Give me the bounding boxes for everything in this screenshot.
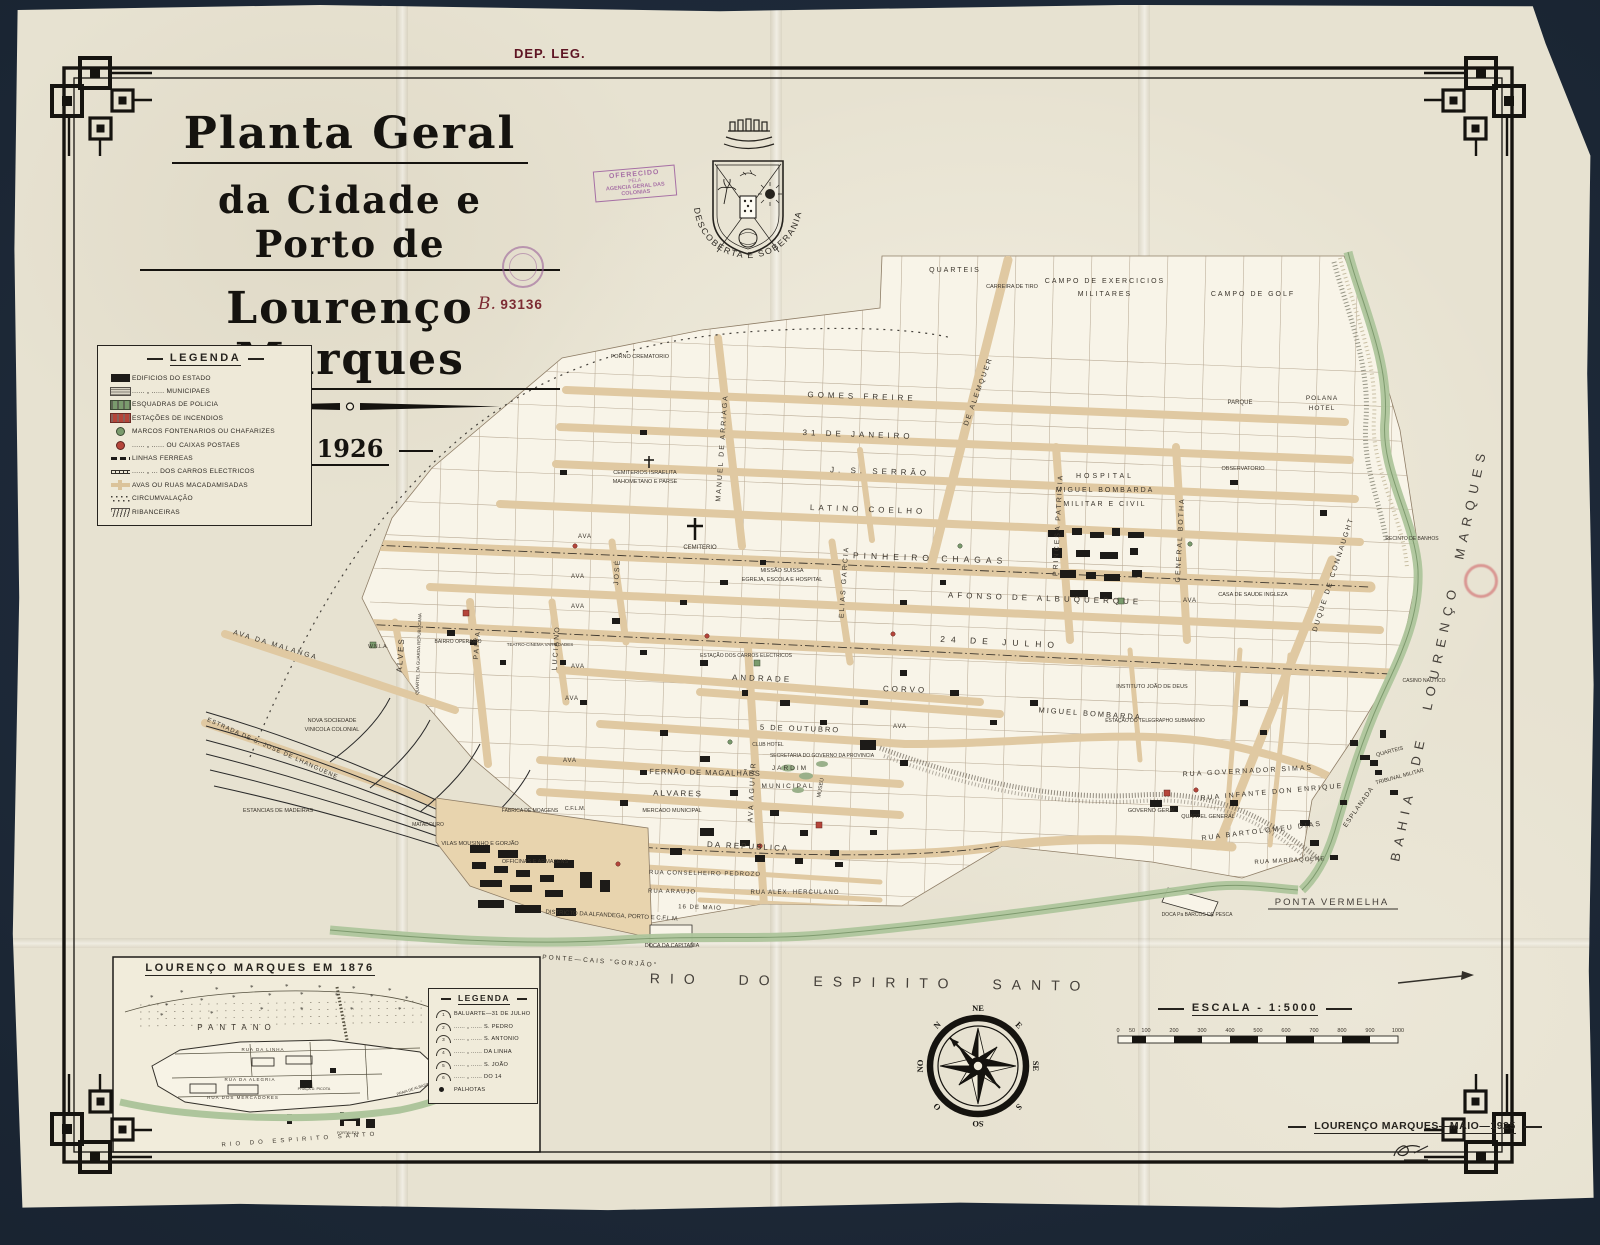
baluarte-icon xyxy=(439,1087,444,1092)
tree-symbol: * xyxy=(210,1010,214,1018)
legend-symbol xyxy=(116,441,125,450)
legend-item: CIRCUMVALAÇÃO xyxy=(108,493,303,505)
inset-legend-item: 6 ...... „ ...... DO 14 xyxy=(436,1071,532,1084)
map-label: MILITAR E CIVIL xyxy=(1063,501,1146,508)
legend-symbol xyxy=(111,508,130,517)
map-label: CARREIRA DE TIRO xyxy=(986,284,1039,290)
map-label: AVA xyxy=(1183,598,1197,604)
map-label: AVA xyxy=(571,604,585,610)
legend-item: ...... „ ...... MUNICIPAES xyxy=(108,385,303,397)
legend-box: LEGENDA EDIFICIOS DO ESTADO ...... „ ...… xyxy=(97,345,312,526)
map-label: ESTAÇÃO DO TELEGRAPHO SUBMARINO xyxy=(1105,717,1205,724)
legend-symbol xyxy=(111,496,130,502)
map-label: EGREJA, ESCOLA E HOSPITAL xyxy=(742,577,823,583)
map-label: CLUB HOTEL xyxy=(752,742,784,748)
tree-symbol: * xyxy=(300,991,304,999)
scale-tick-label: 1000 xyxy=(1392,1028,1404,1034)
scale-title: ESCALA - 1:5000 xyxy=(1192,1002,1318,1016)
map-label: QUARTEL GENERAL xyxy=(1181,814,1235,820)
legend-symbol xyxy=(111,470,130,475)
tree-symbol: * xyxy=(232,994,236,1002)
legend-item: ESQUADRAS DE POLICIA xyxy=(108,399,303,411)
tree-symbol: * xyxy=(335,992,339,1000)
map-label: RUA ARAUJO xyxy=(648,889,696,896)
map-label: AVA DA MALANGA xyxy=(232,629,318,661)
scale-tick-label: 200 xyxy=(1169,1028,1178,1034)
map-label: HOTEL xyxy=(1309,405,1336,412)
map-label: TEATRO-CINEMA VARIEDADES xyxy=(507,642,574,647)
map-label: AVA xyxy=(563,758,577,764)
map-label: PONTE—CAIS "GORJÃO" xyxy=(542,952,658,969)
legend-title-row: LEGENDA xyxy=(108,352,303,366)
inset-legend-box: LEGENDA 1 BALUARTE—31 DE JULHO 2 ...... … xyxy=(428,988,538,1104)
map-label: CAMPO DE GOLF xyxy=(1211,291,1295,298)
map-label: MILITARES xyxy=(1078,291,1132,298)
map-label: DOCA Pa BARCOS DE PESCA xyxy=(1162,912,1234,918)
compass-direction: N xyxy=(931,1019,943,1031)
baluarte-icon: 3 xyxy=(436,1035,451,1043)
credit-row: LOURENÇO MARQUES—MAIO—1925 xyxy=(1270,1120,1560,1134)
map-label: PRAÇA D. PICOTA xyxy=(298,1087,331,1091)
river-flow-arrow xyxy=(1398,971,1474,983)
map-label: QUARTEIS xyxy=(929,267,981,274)
compass-rose: NEESESSOONON xyxy=(915,1003,1041,1129)
legend-item-label: MARCOS FONTENARIOS OU CHAFARIZES xyxy=(132,428,275,435)
map-label: OFFICINAS E ARMAZENS xyxy=(502,859,569,865)
legend-item-label: ...... „ ...... OU CAIXAS POSTAES xyxy=(132,442,240,449)
map-label: MERCADO MUNICIPAL xyxy=(642,808,701,814)
registry-number: B. 93136 xyxy=(478,294,543,314)
scale-bar: 0501002003004005006007008009001000 xyxy=(1116,1028,1404,1043)
compass-direction: E xyxy=(1013,1019,1024,1030)
legend-item: ...... „ ...... OU CAIXAS POSTAES xyxy=(108,439,303,451)
legend-title: LEGENDA xyxy=(170,352,241,366)
compass-direction: NE xyxy=(972,1003,984,1013)
map-label: JARDIM xyxy=(772,765,808,772)
legend-item-label: CIRCUMVALAÇÃO xyxy=(132,495,193,502)
inset-legend-item-label: BALUARTE—31 DE JULHO xyxy=(454,1011,530,1017)
map-label: BAIRRO OPERARIO xyxy=(435,639,482,645)
legend-item: EDIFICIOS DO ESTADO xyxy=(108,372,303,384)
inset-legend-item-label: ...... „ ...... S. ANTONIO xyxy=(454,1036,519,1042)
legend-item: ESTAÇÕES DE INCENDIOS xyxy=(108,412,303,424)
red-seal-stamp xyxy=(1464,564,1498,598)
baluarte-icon: 1 xyxy=(436,1010,451,1018)
inset-legend-item: 5 ...... „ ...... S. JOÃO xyxy=(436,1058,532,1071)
map-label: GOVERNO GERAL xyxy=(1128,808,1176,814)
legend-item-label: ...... „ ...... MUNICIPAES xyxy=(132,388,210,395)
tree-symbol: * xyxy=(260,1006,264,1014)
inset-legend-item-label: PALHOTAS xyxy=(454,1087,485,1093)
map-label: VILAS MOUSINHO E GORJÃO xyxy=(441,840,519,847)
legend-symbol xyxy=(110,400,131,410)
tree-symbol: * xyxy=(200,997,204,1005)
scale-tick-label: 600 xyxy=(1281,1028,1290,1034)
map-label: NOVA SOCIEDADE xyxy=(308,718,357,724)
map-label: PONTA VERMELHA xyxy=(1275,897,1389,908)
compass-direction: O xyxy=(931,1101,943,1113)
legend-item-label: RIBANCEIRAS xyxy=(132,509,180,516)
map-label: CEMITERIOS ISRAELITA xyxy=(613,470,677,476)
tree-symbol: * xyxy=(268,992,272,1000)
tree-symbol: * xyxy=(160,1012,164,1020)
scale-tick-label: 100 xyxy=(1141,1028,1150,1034)
map-label: W.N.L.A. xyxy=(368,644,388,650)
map-label: VINICOLA COLONIAL xyxy=(305,727,360,733)
scale-title-row: ESCALA - 1:5000 xyxy=(1145,1002,1365,1016)
tree-symbol: * xyxy=(215,986,219,994)
scale-tick-label: 700 xyxy=(1309,1028,1318,1034)
map-label: FABRICA DE MOAGENS xyxy=(502,808,559,814)
tree-symbol: * xyxy=(405,995,409,1003)
inset-legend-item: 4 ...... „ ...... DA LINHA xyxy=(436,1046,532,1059)
coat-of-arms: DESCOBERTA E SOBERANIA PORTUGUESA xyxy=(688,106,808,316)
baluarte-icon: 5 xyxy=(436,1061,451,1069)
map-label: QUARTEIS xyxy=(1375,745,1404,758)
legend-symbol xyxy=(111,457,130,460)
map-label: AVA xyxy=(571,664,585,670)
map-label: AVA xyxy=(571,574,585,580)
tree-symbol: * xyxy=(398,1006,402,1014)
tree-symbol: * xyxy=(388,987,392,995)
scale-tick-label: 500 xyxy=(1253,1028,1262,1034)
baluarte-icon: 2 xyxy=(436,1023,451,1031)
tree-symbol: * xyxy=(250,984,254,992)
map-label: ESTAÇÃO DOS CARROS ELECTRICOS xyxy=(700,652,793,659)
legend-item-label: EDIFICIOS DO ESTADO xyxy=(132,375,211,382)
map-label: AVA xyxy=(578,534,592,540)
baluarte-icon: 6 xyxy=(436,1073,451,1081)
legend-symbol xyxy=(116,427,125,436)
inset-title: LOURENÇO MARQUES EM 1876 xyxy=(140,962,380,974)
legend-item-label: AVAS OU RUAS MACADAMISADAS xyxy=(132,482,248,489)
map-label: DOCA DA CAPITANIA xyxy=(645,943,700,949)
inset-legend-item-label: ...... „ ...... DA LINHA xyxy=(454,1049,512,1055)
inset-legend-title-row: LEGENDA xyxy=(436,993,532,1005)
map-label: POLANA xyxy=(1306,395,1338,402)
scale-tick-label: 800 xyxy=(1337,1028,1346,1034)
map-year: 1926 xyxy=(311,434,390,466)
map-label: AVA xyxy=(893,724,907,730)
deposito-legal-stamp: DEP. LEG. xyxy=(514,46,586,61)
scale-tick-label: 50 xyxy=(1129,1028,1135,1034)
scale-tick-label: 0 xyxy=(1116,1028,1119,1034)
map-label: RUA DA LINHA xyxy=(241,1047,284,1052)
inset-legend-title: LEGENDA xyxy=(458,993,510,1005)
legend-item: MARCOS FONTENARIOS OU CHAFARIZES xyxy=(108,426,303,438)
map-label: RUA DA ALEGRIA xyxy=(224,1077,275,1082)
legend-item: LINHAS FERREAS xyxy=(108,452,303,464)
inset-legend-item-label: ...... „ ...... S. PEDRO xyxy=(454,1024,513,1030)
legend-item: AVAS OU RUAS MACADAMISADAS xyxy=(108,479,303,491)
map-label: HOSPITAL xyxy=(1076,473,1134,480)
tree-symbol: * xyxy=(165,1002,169,1010)
legend-item: RIBANCEIRAS xyxy=(108,506,303,518)
scale-tick-label: 400 xyxy=(1225,1028,1234,1034)
inset-legend-item-label: ...... „ ...... DO 14 xyxy=(454,1074,502,1080)
legend-item: ...... „ ... DOS CARROS ELECTRICOS xyxy=(108,466,303,478)
compass-direction: SO xyxy=(972,1119,984,1129)
map-label: RUA DOS MERCADORES xyxy=(207,1095,279,1100)
map-label: RUA ALEX. HERCULANO xyxy=(750,890,839,896)
tree-symbol: * xyxy=(180,989,184,997)
map-label: ESTANCIAS DE MADEIRAS xyxy=(243,808,314,814)
tree-symbol: * xyxy=(318,984,322,992)
tree-symbol: * xyxy=(350,1006,354,1014)
legend-symbol xyxy=(110,413,131,423)
map-label: PANTANO xyxy=(197,1023,276,1032)
round-seal-stamp xyxy=(502,246,544,288)
inset-legend-item: 3 ...... „ ...... S. ANTONIO xyxy=(436,1033,532,1046)
map-label: C.F.L.M. xyxy=(565,806,586,812)
inset-legend-items: 1 BALUARTE—31 DE JULHO 2 ...... „ ......… xyxy=(436,1008,532,1096)
map-label: MISSÃO SUISSA xyxy=(760,567,803,574)
map-label: CEMITERIO xyxy=(683,545,717,551)
tree-symbol: * xyxy=(150,994,154,1002)
map-label: AVA xyxy=(565,696,579,702)
credit-text: LOURENÇO MARQUES—MAIO—1925 xyxy=(1314,1120,1515,1134)
legend-item-label: ESTAÇÕES DE INCENDIOS xyxy=(132,415,223,422)
signature-mark xyxy=(1390,1140,1440,1164)
map-label: ALVARES xyxy=(653,789,703,799)
baluarte-icon: 4 xyxy=(436,1048,451,1056)
map-label: SECRETARIA DO GOVERNO DA PROVINCIA xyxy=(770,753,875,759)
legend-symbol xyxy=(111,480,130,490)
tree-symbol: * xyxy=(300,1006,304,1014)
tree-symbol: * xyxy=(370,993,374,1001)
inset-legend-item-label: ...... „ ...... S. JOÃO xyxy=(454,1062,508,1068)
map-label: MATADOURO xyxy=(412,822,444,828)
title-line-2: da Cidade e Porto de xyxy=(140,178,560,271)
map-label: OBSERVATORIO xyxy=(1222,466,1266,472)
compass-direction: NO xyxy=(915,1059,925,1072)
compass-direction: SE xyxy=(1031,1061,1041,1072)
tree-symbol: * xyxy=(352,985,356,993)
legend-items: EDIFICIOS DO ESTADO ...... „ ...... MUNI… xyxy=(108,372,303,518)
map-label: INSTITUTO JOÃO DE DEUS xyxy=(1116,683,1188,690)
compass-direction: S xyxy=(1014,1102,1025,1113)
inset-legend-item: 1 BALUARTE—31 DE JULHO xyxy=(436,1008,532,1021)
map-label: PARQUE xyxy=(1228,400,1253,406)
map-label: MUNICIPAL xyxy=(762,783,815,790)
legend-item-label: ...... „ ... DOS CARROS ELECTRICOS xyxy=(132,468,255,475)
title-line-1: Planta Geral xyxy=(172,108,528,164)
map-label: FORNO CREMATORIO xyxy=(611,354,670,360)
inset-legend-item: PALHOTAS xyxy=(436,1084,532,1097)
legend-item-label: LINHAS FERREAS xyxy=(132,455,193,462)
tree-symbol: * xyxy=(285,983,289,991)
scale-tick-label: 900 xyxy=(1365,1028,1374,1034)
map-label: MIGUEL BOMBARDA xyxy=(1056,487,1155,494)
map-label: MAHOMETANO E PARSE xyxy=(613,479,678,485)
map-label: RIO DO ESPIRITO SANTO xyxy=(650,970,1091,994)
map-label: CORVO xyxy=(883,684,927,695)
legend-symbol xyxy=(111,374,130,382)
legend-symbol xyxy=(110,387,131,396)
legend-item-label: ESQUADRAS DE POLICIA xyxy=(132,401,218,408)
scale-tick-label: 300 xyxy=(1197,1028,1206,1034)
map-label: CAMPO DE EXERCICIOS xyxy=(1045,278,1165,285)
map-label: RECINTO DE BANHOS xyxy=(1385,536,1439,542)
inset-legend-item: 2 ...... „ ...... S. PEDRO xyxy=(436,1021,532,1034)
map-label: CASA DE SAUDE INGLEZA xyxy=(1218,592,1288,598)
